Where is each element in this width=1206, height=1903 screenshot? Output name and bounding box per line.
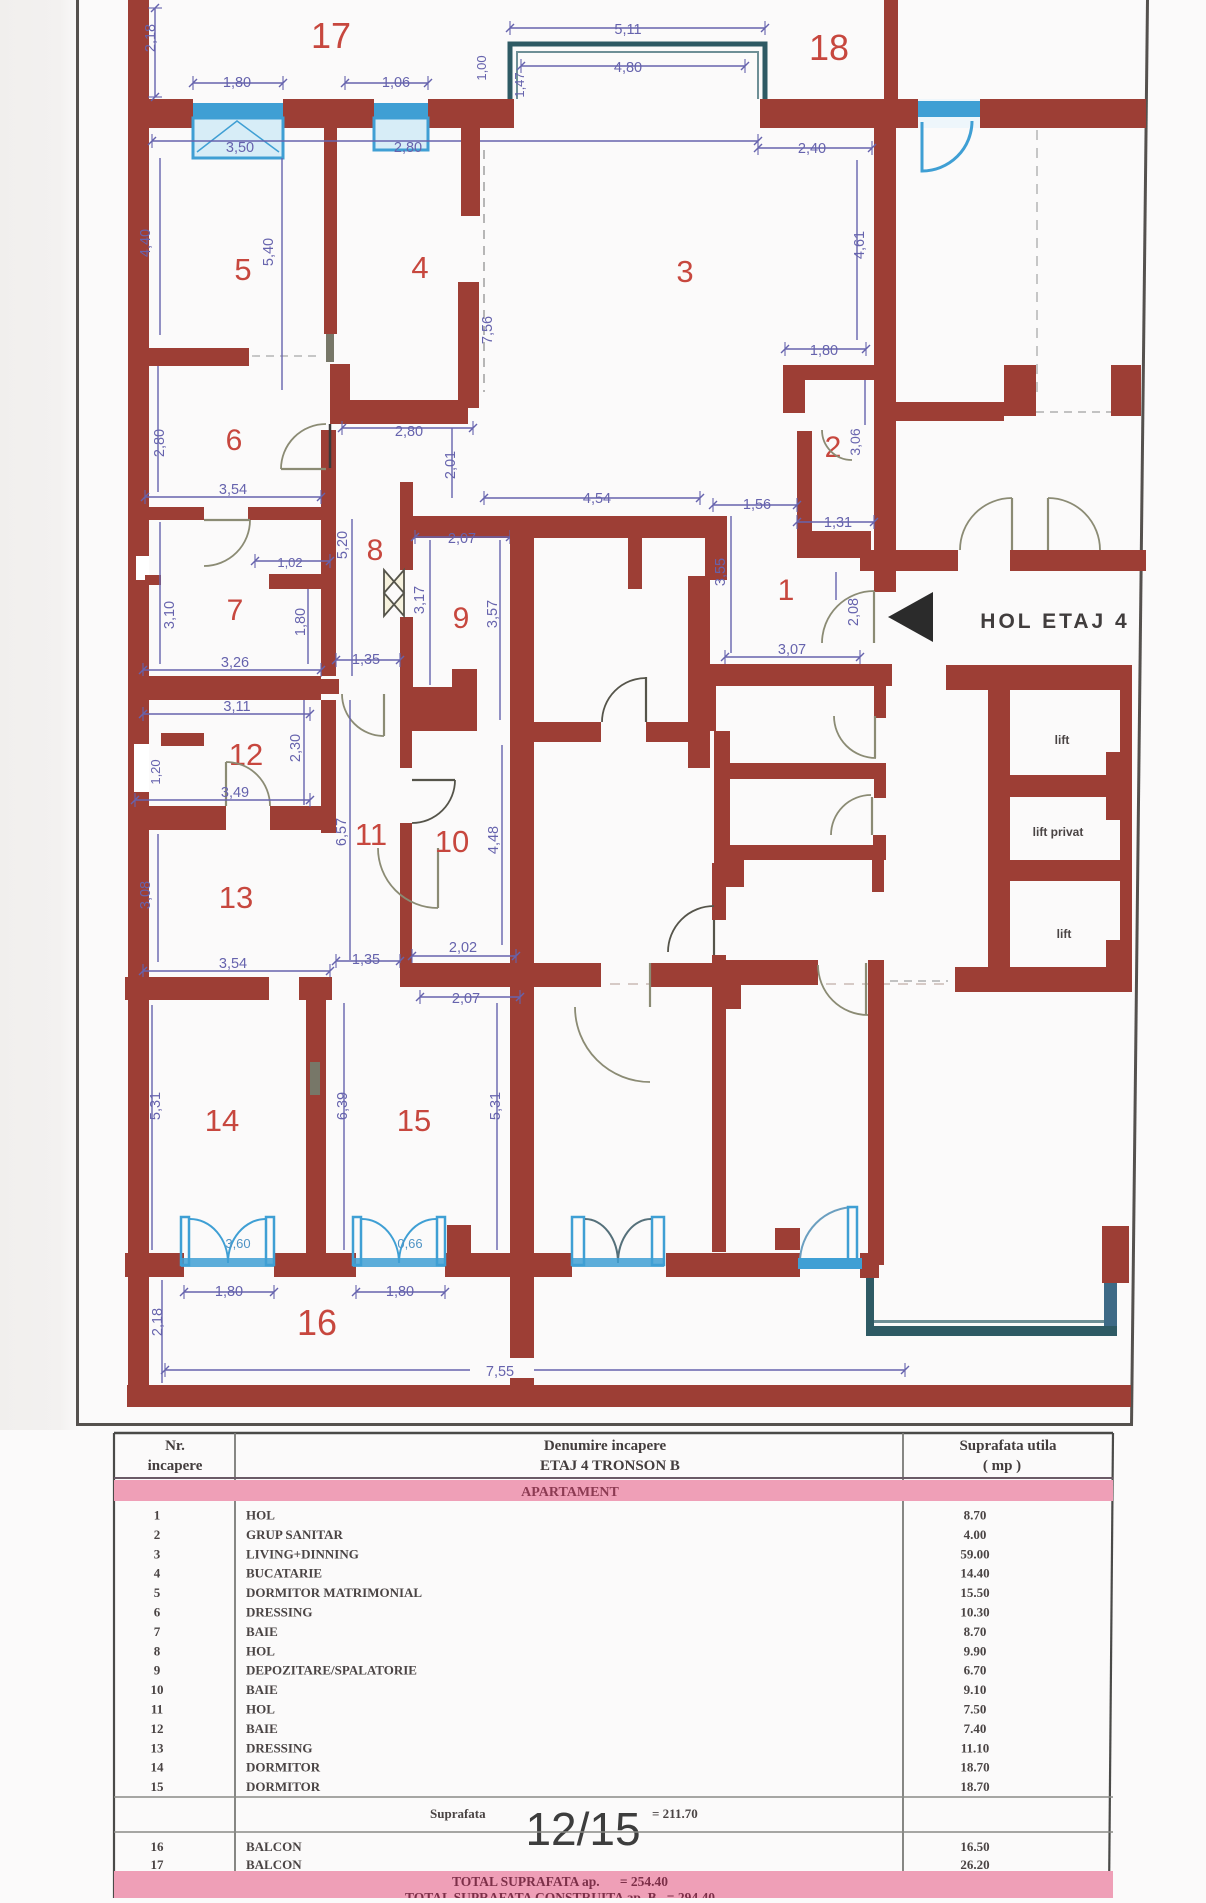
svg-text:8: 8	[367, 534, 384, 567]
svg-text:4.00: 4.00	[964, 1527, 987, 1542]
svg-text:DRESSING: DRESSING	[246, 1605, 312, 1620]
svg-text:18.70: 18.70	[960, 1760, 989, 1775]
svg-text:DEPOZITARE/SPALATORIE: DEPOZITARE/SPALATORIE	[246, 1663, 417, 1678]
svg-text:2,18: 2,18	[150, 1308, 166, 1336]
svg-text:BAIE: BAIE	[246, 1682, 278, 1697]
svg-text:4: 4	[154, 1566, 161, 1581]
svg-text:7,56: 7,56	[480, 316, 496, 344]
svg-text:59.00: 59.00	[960, 1546, 989, 1561]
svg-text:9: 9	[154, 1663, 161, 1678]
svg-text:6.70: 6.70	[964, 1663, 987, 1678]
svg-text:1,56: 1,56	[743, 497, 771, 513]
svg-text:BAIE: BAIE	[246, 1721, 278, 1736]
svg-text:3,54: 3,54	[219, 956, 247, 972]
svg-text:BAIE: BAIE	[246, 1624, 278, 1639]
svg-text:2,80: 2,80	[152, 429, 168, 457]
svg-text:DRESSING: DRESSING	[246, 1740, 312, 1755]
svg-text:5,40: 5,40	[261, 238, 277, 266]
svg-text:6: 6	[226, 424, 243, 457]
svg-text:3,55: 3,55	[713, 558, 729, 586]
svg-text:DORMITOR MATRIMONIAL: DORMITOR MATRIMONIAL	[246, 1585, 422, 1600]
svg-text:2,07: 2,07	[452, 991, 480, 1007]
svg-text:1,80: 1,80	[293, 608, 309, 636]
svg-text:1,00: 1,00	[474, 55, 489, 80]
svg-text:TOTAL SUPRAFATA ap. = 254: TOTAL SUPRAFATA ap. = 254.40	[452, 1874, 668, 1889]
svg-text:16: 16	[297, 1302, 337, 1343]
svg-text:3,06: 3,06	[847, 428, 863, 455]
svg-text:1: 1	[154, 1508, 161, 1523]
svg-text:14: 14	[205, 1103, 239, 1138]
svg-text:3: 3	[676, 254, 693, 289]
svg-text:5,31: 5,31	[148, 1092, 164, 1120]
svg-text:HOL ETAJ 4: HOL ETAJ 4	[980, 610, 1129, 633]
svg-text:3,26: 3,26	[221, 655, 249, 671]
svg-text:BUCATARIE: BUCATARIE	[246, 1566, 322, 1581]
svg-text:11: 11	[355, 817, 387, 852]
svg-text:4,40: 4,40	[138, 229, 154, 257]
svg-text:16: 16	[151, 1839, 165, 1854]
svg-text:lift privat: lift privat	[1033, 825, 1084, 839]
svg-text:9.90: 9.90	[964, 1643, 987, 1658]
svg-text:13: 13	[219, 880, 253, 915]
svg-text:Denumire incapere: Denumire incapere	[544, 1438, 667, 1454]
svg-text:GRUP SANITAR: GRUP SANITAR	[246, 1527, 344, 1542]
svg-text:HOL: HOL	[246, 1643, 275, 1658]
svg-text:1,80: 1,80	[810, 343, 838, 359]
svg-text:6: 6	[154, 1605, 161, 1620]
svg-text:3,54: 3,54	[219, 482, 247, 498]
svg-text:Nr.: Nr.	[165, 1438, 185, 1454]
svg-text:12/15: 12/15	[525, 1803, 640, 1855]
svg-text:2,40: 2,40	[798, 141, 826, 157]
svg-text:3,10: 3,10	[162, 601, 178, 629]
svg-text:DORMITOR: DORMITOR	[246, 1760, 321, 1775]
svg-text:4,48: 4,48	[486, 826, 502, 854]
svg-text:3,07: 3,07	[778, 642, 806, 658]
svg-text:14: 14	[151, 1760, 165, 1775]
svg-text:APARTAMENT: APARTAMENT	[521, 1485, 619, 1500]
svg-text:16.50: 16.50	[960, 1839, 989, 1854]
svg-text:17: 17	[151, 1857, 165, 1872]
svg-text:1,80: 1,80	[215, 1284, 243, 1300]
svg-text:ETAJ 4 TRONSON B: ETAJ 4 TRONSON B	[540, 1458, 680, 1474]
svg-text:2,18: 2,18	[143, 24, 159, 52]
svg-text:5,31: 5,31	[488, 1092, 504, 1120]
svg-text:7: 7	[154, 1624, 161, 1639]
svg-text:1,35: 1,35	[352, 952, 380, 968]
svg-text:2,01: 2,01	[443, 451, 459, 479]
svg-text:7.50: 7.50	[964, 1702, 987, 1717]
svg-text:12: 12	[151, 1721, 164, 1736]
svg-text:3,49: 3,49	[221, 785, 249, 801]
svg-text:HOL: HOL	[246, 1508, 275, 1523]
svg-text:18.70: 18.70	[960, 1779, 989, 1794]
svg-text:DORMITOR: DORMITOR	[246, 1779, 321, 1794]
svg-text:Suprafata: Suprafata	[430, 1806, 486, 1821]
svg-text:10: 10	[151, 1682, 164, 1697]
svg-text:5: 5	[154, 1585, 161, 1600]
svg-text:2: 2	[154, 1527, 161, 1542]
svg-text:3,50: 3,50	[226, 140, 254, 156]
svg-text:4: 4	[411, 250, 428, 285]
svg-text:2,80: 2,80	[395, 424, 423, 440]
svg-text:TOTAL SUPRAFATA CONSTRUITA ap.: TOTAL SUPRAFATA CONSTRUITA ap. B = 294.4…	[405, 1890, 715, 1898]
svg-text:5,11: 5,11	[614, 22, 641, 38]
svg-text:11.10: 11.10	[961, 1740, 990, 1755]
svg-text:6,57: 6,57	[334, 818, 350, 846]
svg-text:BALCON: BALCON	[246, 1857, 302, 1872]
svg-text:18: 18	[809, 27, 849, 68]
svg-text:8: 8	[154, 1643, 161, 1658]
svg-text:1,20: 1,20	[148, 759, 163, 784]
svg-text:HOL: HOL	[246, 1702, 275, 1717]
svg-text:3,08: 3,08	[138, 881, 154, 909]
svg-text:incapere: incapere	[148, 1458, 203, 1474]
svg-text:lift: lift	[1055, 733, 1070, 747]
svg-text:3,57: 3,57	[485, 600, 501, 628]
svg-text:1,06: 1,06	[382, 75, 410, 91]
svg-text:1,02: 1,02	[277, 555, 302, 570]
svg-text:10.30: 10.30	[960, 1605, 989, 1620]
svg-text:1,80: 1,80	[386, 1284, 414, 1300]
svg-text:1,31: 1,31	[824, 515, 852, 531]
svg-text:10: 10	[435, 824, 469, 859]
svg-text:15: 15	[151, 1779, 165, 1794]
svg-text:3,17: 3,17	[412, 586, 428, 614]
svg-text:BALCON: BALCON	[246, 1839, 302, 1854]
svg-text:6,39: 6,39	[335, 1092, 351, 1120]
svg-text:0,66: 0,66	[397, 1236, 422, 1251]
svg-text:9.10: 9.10	[964, 1682, 987, 1697]
svg-text:1: 1	[778, 574, 795, 607]
svg-text:4,80: 4,80	[614, 60, 642, 76]
svg-text:( mp ): ( mp )	[983, 1458, 1021, 1474]
svg-text:2,08: 2,08	[846, 598, 862, 626]
svg-text:13: 13	[151, 1740, 165, 1755]
svg-text:5,20: 5,20	[335, 531, 351, 559]
svg-text:LIVING+DINNING: LIVING+DINNING	[246, 1546, 359, 1561]
svg-text:Suprafata utila: Suprafata utila	[959, 1438, 1057, 1454]
svg-text:7,55: 7,55	[486, 1364, 514, 1380]
svg-text:15.50: 15.50	[960, 1585, 989, 1600]
svg-text:26.20: 26.20	[960, 1857, 989, 1872]
svg-text:11: 11	[151, 1702, 163, 1717]
svg-text:lift: lift	[1057, 927, 1072, 941]
svg-text:15: 15	[397, 1103, 431, 1138]
svg-text:1,35: 1,35	[352, 652, 380, 668]
svg-text:2,07: 2,07	[448, 531, 476, 547]
svg-text:2,80: 2,80	[394, 140, 422, 156]
svg-text:2,30: 2,30	[288, 734, 304, 762]
svg-text:1,47: 1,47	[512, 72, 527, 97]
svg-text:1,80: 1,80	[223, 75, 251, 91]
svg-text:17: 17	[311, 15, 351, 56]
svg-text:4,61: 4,61	[852, 231, 868, 259]
svg-text:= 211.70: = 211.70	[652, 1806, 698, 1821]
svg-text:3,11: 3,11	[223, 699, 250, 715]
svg-text:8.70: 8.70	[964, 1508, 987, 1523]
svg-text:3,60: 3,60	[225, 1236, 250, 1251]
svg-text:14.40: 14.40	[960, 1566, 989, 1581]
svg-text:5: 5	[234, 252, 251, 287]
svg-text:2,02: 2,02	[449, 940, 477, 956]
svg-text:8.70: 8.70	[964, 1624, 987, 1639]
svg-text:4,54: 4,54	[583, 491, 611, 507]
svg-text:3: 3	[154, 1546, 161, 1561]
svg-text:9: 9	[453, 602, 470, 635]
svg-text:7: 7	[227, 594, 244, 627]
svg-text:7.40: 7.40	[964, 1721, 987, 1736]
